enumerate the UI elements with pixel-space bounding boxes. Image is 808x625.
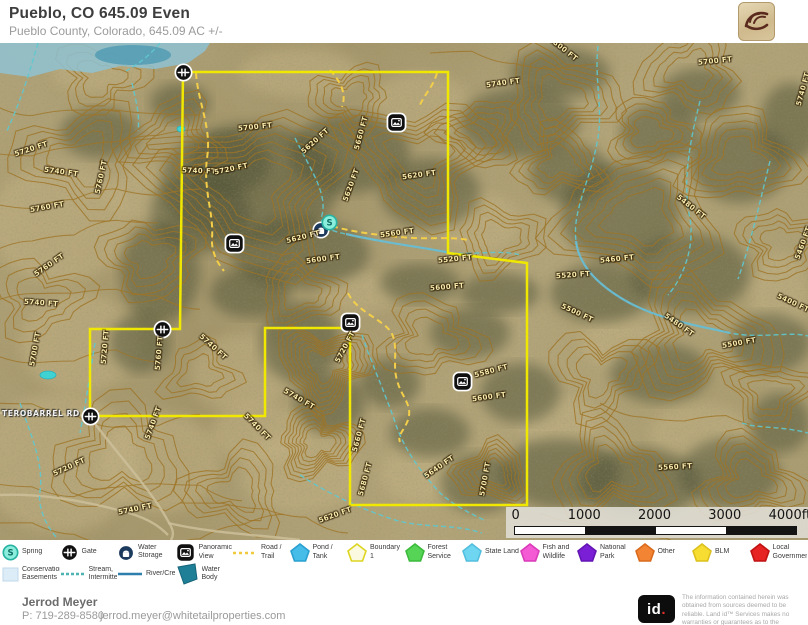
footer: Jerrod Meyer P: 719-289-8580 jerrod.meye… bbox=[0, 588, 808, 625]
boundary-1-swatch-icon bbox=[347, 543, 367, 563]
contour-elevation-label: 5740 FT bbox=[182, 166, 217, 175]
legend-item-water-storage-tank: Water Storage Tank bbox=[117, 542, 175, 563]
state-land-swatch-icon bbox=[462, 543, 482, 563]
legend-item-label: Boundary 1 bbox=[370, 544, 405, 561]
gate-icon[interactable] bbox=[81, 407, 100, 426]
svg-text:S: S bbox=[326, 218, 332, 228]
land-id-map-export: { "header": { "title": "Pueblo, CO 645.0… bbox=[0, 0, 808, 625]
scale-label: 1000 bbox=[568, 508, 601, 523]
fish-and-wildlife-swatch-icon bbox=[520, 543, 540, 563]
legend-item-river-creek: River/Creek bbox=[117, 563, 175, 585]
legend-item-water-body: Water Body bbox=[175, 563, 233, 585]
land-id-logo: id. bbox=[638, 595, 675, 623]
panoramic-view-icon[interactable] bbox=[224, 233, 245, 254]
legend-item-label: Stream, Intermittent bbox=[89, 566, 118, 583]
svg-text:S: S bbox=[7, 549, 13, 559]
legend-item-label: Panoramic View bbox=[199, 544, 233, 561]
legend-item-label: BLM bbox=[715, 548, 729, 556]
legend-item-label: Other bbox=[658, 548, 676, 556]
land-id-logo-text: id bbox=[647, 601, 661, 618]
scale-segment bbox=[726, 527, 796, 534]
scale-segment bbox=[656, 527, 726, 534]
legend-item-other: Other bbox=[635, 542, 693, 563]
scale-label: 4000ft bbox=[769, 508, 808, 523]
map-canvas[interactable]: S 5720 FT5740 FT5760 FT5760 FT5760 FT574… bbox=[0, 43, 808, 540]
legend-item-label: National Park bbox=[600, 544, 635, 561]
legend-item-label: State Land bbox=[485, 548, 519, 556]
scale-label: 3000 bbox=[708, 508, 741, 523]
pond-tank-swatch-icon bbox=[290, 543, 310, 563]
antler-icon bbox=[739, 3, 774, 40]
legend-item-spring: SSpring bbox=[2, 542, 60, 563]
legend-item-state-land: State Land bbox=[462, 542, 520, 563]
gate-swatch-icon bbox=[60, 543, 79, 562]
national-park-swatch-icon bbox=[577, 543, 597, 563]
page-title: Pueblo, CO 645.09 Even bbox=[9, 5, 190, 23]
legend-item-blm: BLM bbox=[692, 542, 750, 563]
legend-item-label: Pond / Tank bbox=[313, 544, 348, 561]
panoramic-view-icon[interactable] bbox=[386, 112, 407, 133]
road-trail-swatch-icon bbox=[232, 546, 258, 560]
legend: SSpringGateWater Storage TankPanoramic V… bbox=[0, 540, 808, 588]
legend-item-stream-intermittent: Stream, Intermittent bbox=[60, 563, 118, 585]
legend-item-label: Fish and Wildlife bbox=[543, 544, 578, 561]
legend-item-panoramic-view: Panoramic View bbox=[175, 542, 233, 563]
gate-icon[interactable] bbox=[174, 63, 193, 82]
land-id-logo-dot: . bbox=[661, 601, 666, 618]
blm-swatch-icon bbox=[692, 543, 712, 563]
legend-item-label: Water Body bbox=[202, 566, 233, 583]
disclaimer-text: The information contained herein was obt… bbox=[682, 594, 804, 625]
whitetail-properties-logo bbox=[738, 2, 775, 41]
legend-item-conservation-easements: Conservation Easements bbox=[2, 563, 60, 585]
river-creek-swatch-icon bbox=[117, 567, 143, 581]
spring-icon[interactable]: S bbox=[321, 214, 338, 231]
legend-row-2: Conservation EasementsStream, Intermitte… bbox=[2, 563, 808, 585]
other-swatch-icon bbox=[635, 543, 655, 563]
spring-swatch-icon: S bbox=[2, 544, 19, 561]
scale-segment bbox=[515, 527, 585, 534]
legend-item-label: River/Creek bbox=[146, 570, 175, 578]
legend-item-boundary-1: Boundary 1 bbox=[347, 542, 405, 563]
legend-item-label: Water Storage Tank bbox=[138, 544, 175, 561]
scale-label: 2000 bbox=[638, 508, 671, 523]
legend-item-road-trail: Road / Trail bbox=[232, 542, 290, 563]
scale-segment bbox=[585, 527, 655, 534]
agent-email: jerrod.meyer@whitetailproperties.com bbox=[100, 610, 285, 622]
legend-item-label: Gate bbox=[82, 548, 97, 556]
legend-item-gate: Gate bbox=[60, 542, 118, 563]
legend-item-forest-service: Forest Service bbox=[405, 542, 463, 563]
scale-bar-segments bbox=[514, 526, 797, 535]
forest-service-swatch-icon bbox=[405, 543, 425, 563]
panoramic-view-swatch-icon bbox=[175, 542, 196, 563]
road-name-label: TEROBARREL RD bbox=[2, 409, 80, 418]
legend-row-1: SSpringGateWater Storage TankPanoramic V… bbox=[2, 542, 808, 563]
panoramic-view-icon[interactable] bbox=[452, 371, 473, 392]
agent-name: Jerrod Meyer bbox=[22, 595, 97, 609]
legend-item-label: Spring bbox=[22, 548, 42, 556]
water-body-swatch-icon bbox=[175, 563, 199, 585]
legend-item-national-park: National Park bbox=[577, 542, 635, 563]
page-subtitle: Pueblo County, Colorado, 645.09 AC +/- bbox=[9, 24, 223, 38]
legend-item-fish-and-wildlife: Fish and Wildlife bbox=[520, 542, 578, 563]
legend-item-pond-tank: Pond / Tank bbox=[290, 542, 348, 563]
legend-item-label: Local Government bbox=[773, 544, 808, 561]
local-government-swatch-icon bbox=[750, 543, 770, 563]
scale-bar: 01000200030004000ft bbox=[506, 507, 808, 538]
stream-intermittent-swatch-icon bbox=[60, 567, 86, 581]
legend-item-label: Forest Service bbox=[428, 544, 463, 561]
legend-item-label: Road / Trail bbox=[261, 544, 290, 561]
water-storage-tank-swatch-icon bbox=[117, 544, 135, 562]
scale-label: 0 bbox=[512, 508, 520, 523]
legend-item-label: Conservation Easements bbox=[22, 566, 60, 583]
header: Pueblo, CO 645.09 Even Pueblo County, Co… bbox=[0, 0, 808, 43]
legend-item-local-government: Local Government bbox=[750, 542, 808, 563]
conservation-easements-swatch-icon bbox=[2, 567, 19, 582]
agent-phone: P: 719-289-8580 bbox=[22, 610, 104, 622]
